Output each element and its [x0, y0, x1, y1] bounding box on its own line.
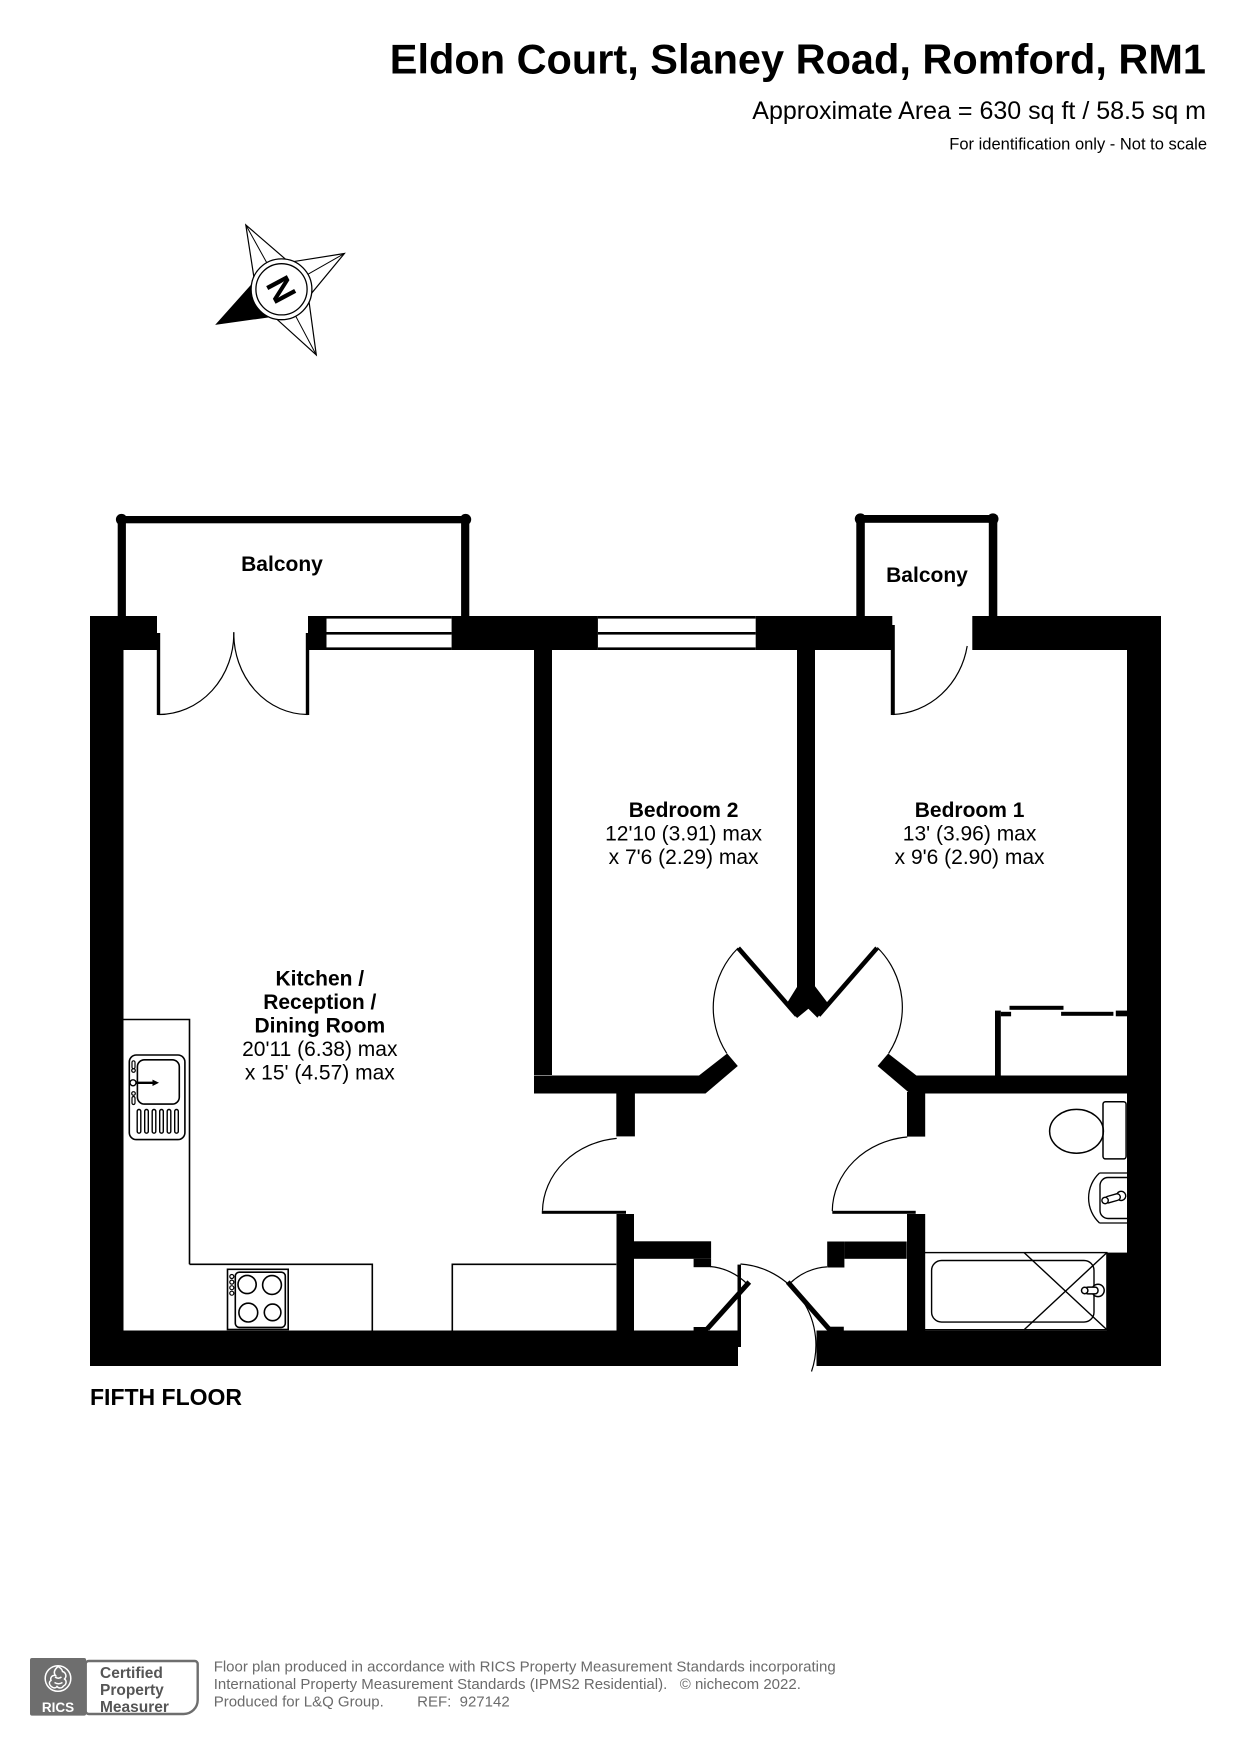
svg-text:20'11 (6.38) max: 20'11 (6.38) max: [242, 1038, 398, 1061]
svg-text:Balcony: Balcony: [886, 564, 968, 587]
svg-text:Eldon Court, Slaney Road, Romf: Eldon Court, Slaney Road, Romford, RM1: [390, 36, 1206, 83]
svg-text:13' (3.96) max: 13' (3.96) max: [903, 823, 1037, 846]
svg-text:Bedroom 1: Bedroom 1: [915, 799, 1025, 822]
svg-text:Balcony: Balcony: [241, 553, 323, 576]
svg-text:Bedroom 2: Bedroom 2: [629, 799, 739, 822]
svg-text:x 9'6 (2.90) max: x 9'6 (2.90) max: [895, 846, 1045, 869]
svg-text:Measurer: Measurer: [100, 1699, 169, 1716]
svg-text:For identification only - Not: For identification only - Not to scale: [949, 136, 1207, 154]
svg-text:RICS: RICS: [42, 1700, 74, 1715]
svg-text:x 7'6 (2.29) max: x 7'6 (2.29) max: [609, 846, 759, 869]
svg-text:International Property Measure: International Property Measurement Stand…: [214, 1676, 801, 1693]
svg-text:Property: Property: [100, 1682, 164, 1699]
svg-text:Floor plan produced in accorda: Floor plan produced in accordance with R…: [214, 1659, 836, 1676]
svg-text:Certified: Certified: [100, 1665, 163, 1682]
svg-text:x 15' (4.57) max: x 15' (4.57) max: [245, 1062, 395, 1085]
svg-text:12'10 (3.91) max: 12'10 (3.91) max: [605, 823, 762, 846]
svg-text:FIFTH FLOOR: FIFTH FLOOR: [90, 1384, 242, 1410]
svg-text:Kitchen /: Kitchen /: [275, 968, 364, 991]
svg-text:Produced for L&Q Group.: Produced for L&Q Group. REF: 927142: [214, 1694, 510, 1711]
svg-text:Approximate Area = 630 sq ft /: Approximate Area = 630 sq ft / 58.5 sq m: [752, 97, 1206, 125]
svg-text:Dining Room: Dining Room: [254, 1015, 385, 1038]
svg-text:Reception /: Reception /: [263, 991, 376, 1014]
